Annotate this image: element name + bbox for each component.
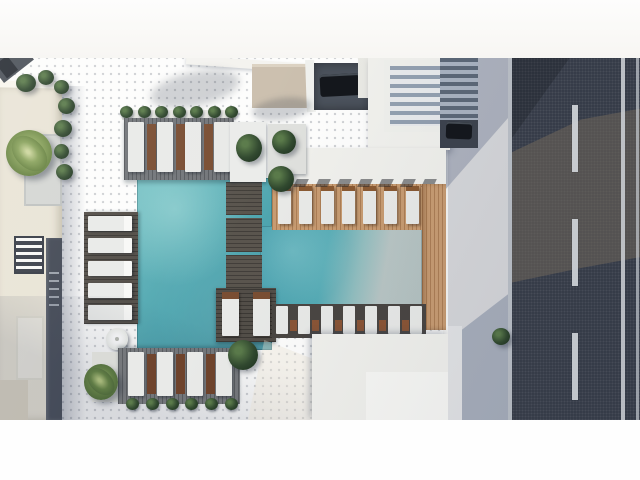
bridge-step xyxy=(226,218,262,251)
hedge-bush xyxy=(146,398,159,410)
sunlit-paving-patch xyxy=(248,340,322,420)
chaise-lounger xyxy=(343,306,355,334)
garland-bush xyxy=(120,106,133,118)
planter-tree xyxy=(236,134,262,162)
garden-bush xyxy=(54,144,69,159)
louver-skylight-a xyxy=(384,60,446,132)
chaise-lounger xyxy=(365,306,377,334)
right-pool xyxy=(260,226,422,310)
garland-bush xyxy=(225,106,238,118)
rooftop-panel xyxy=(16,316,44,380)
hedge-bush xyxy=(205,398,218,410)
chaise-lounger xyxy=(88,283,132,298)
garland-bush xyxy=(173,106,186,118)
island-loungers xyxy=(222,292,270,338)
chaise-lounger xyxy=(88,261,132,276)
chaise-lounger xyxy=(298,306,310,334)
chaise-lounger xyxy=(388,306,400,334)
garden-bush xyxy=(54,80,69,94)
chaise-lounger xyxy=(214,122,230,172)
center-dashed-line xyxy=(572,105,578,400)
far-edge-line xyxy=(636,58,639,420)
garland-bush xyxy=(155,106,168,118)
chaise-lounger xyxy=(88,238,132,253)
island-lounger xyxy=(253,292,270,336)
garden-bush xyxy=(58,98,75,114)
garland-bush xyxy=(190,106,203,118)
solid-edge-line xyxy=(621,58,625,420)
sidewalk-bush xyxy=(492,328,510,345)
chaise-lounger xyxy=(157,352,173,396)
chaise-lounger xyxy=(321,306,333,334)
navy-roof-vents xyxy=(49,272,59,312)
palm-small xyxy=(84,364,118,400)
light-wall-strip xyxy=(448,326,462,420)
lower-row-loungers xyxy=(276,306,422,336)
chaise-lounger xyxy=(276,306,288,334)
hedge-bush xyxy=(126,398,139,410)
chaise-lounger xyxy=(157,122,173,172)
louver-skylight-b xyxy=(440,58,478,120)
garland-bush xyxy=(208,106,221,118)
garden-bush xyxy=(16,74,36,92)
pool-bridge xyxy=(226,182,262,288)
island-lounger xyxy=(222,292,239,336)
pergola-loungers xyxy=(278,186,440,228)
chaise-lounger xyxy=(410,306,422,334)
roof-louver-vent xyxy=(16,238,42,272)
top-deck-loungers xyxy=(128,122,230,176)
chaise-lounger xyxy=(299,186,312,224)
hedge-bush xyxy=(185,398,198,410)
white-roof-annex xyxy=(366,372,452,420)
chaise-lounger xyxy=(128,122,144,172)
chaise-lounger xyxy=(185,122,201,172)
chaise-lounger xyxy=(321,186,334,224)
lane-dash xyxy=(572,219,578,286)
corner-bush-lower xyxy=(268,166,294,192)
bridge-step xyxy=(226,182,262,215)
beige-canopy-roof xyxy=(252,64,310,108)
garden-bush xyxy=(54,120,72,137)
hedge-row xyxy=(126,396,238,412)
aerial-scene xyxy=(0,58,640,420)
letterbox-top xyxy=(0,0,640,58)
bridge-step xyxy=(226,255,262,288)
parked-car xyxy=(319,73,360,97)
chaise-lounger xyxy=(384,186,397,224)
hedge-bush xyxy=(225,398,238,410)
parasol-top-view xyxy=(106,328,128,350)
garden-bush xyxy=(38,70,54,85)
chaise-lounger xyxy=(406,186,419,224)
letterbox-bottom xyxy=(0,420,640,480)
render-canvas xyxy=(0,0,640,480)
palm-tree-large xyxy=(6,130,52,176)
garden-bush xyxy=(56,164,73,180)
round-bush xyxy=(228,340,258,370)
parked-car-right xyxy=(446,122,473,140)
corner-bush xyxy=(272,130,296,154)
navy-roof-strip xyxy=(46,238,62,420)
chaise-lounger xyxy=(187,352,203,396)
lane-dash xyxy=(572,105,578,172)
garland-bush xyxy=(138,106,151,118)
chaise-lounger xyxy=(88,216,132,231)
bottom-deck-loungers xyxy=(128,352,232,400)
chaise-lounger xyxy=(363,186,376,224)
left-deck-loungers xyxy=(88,216,134,320)
hedge-bush xyxy=(166,398,179,410)
chaise-lounger xyxy=(88,305,132,320)
lane-dash xyxy=(572,333,578,400)
chaise-lounger xyxy=(128,352,144,396)
chaise-lounger xyxy=(342,186,355,224)
